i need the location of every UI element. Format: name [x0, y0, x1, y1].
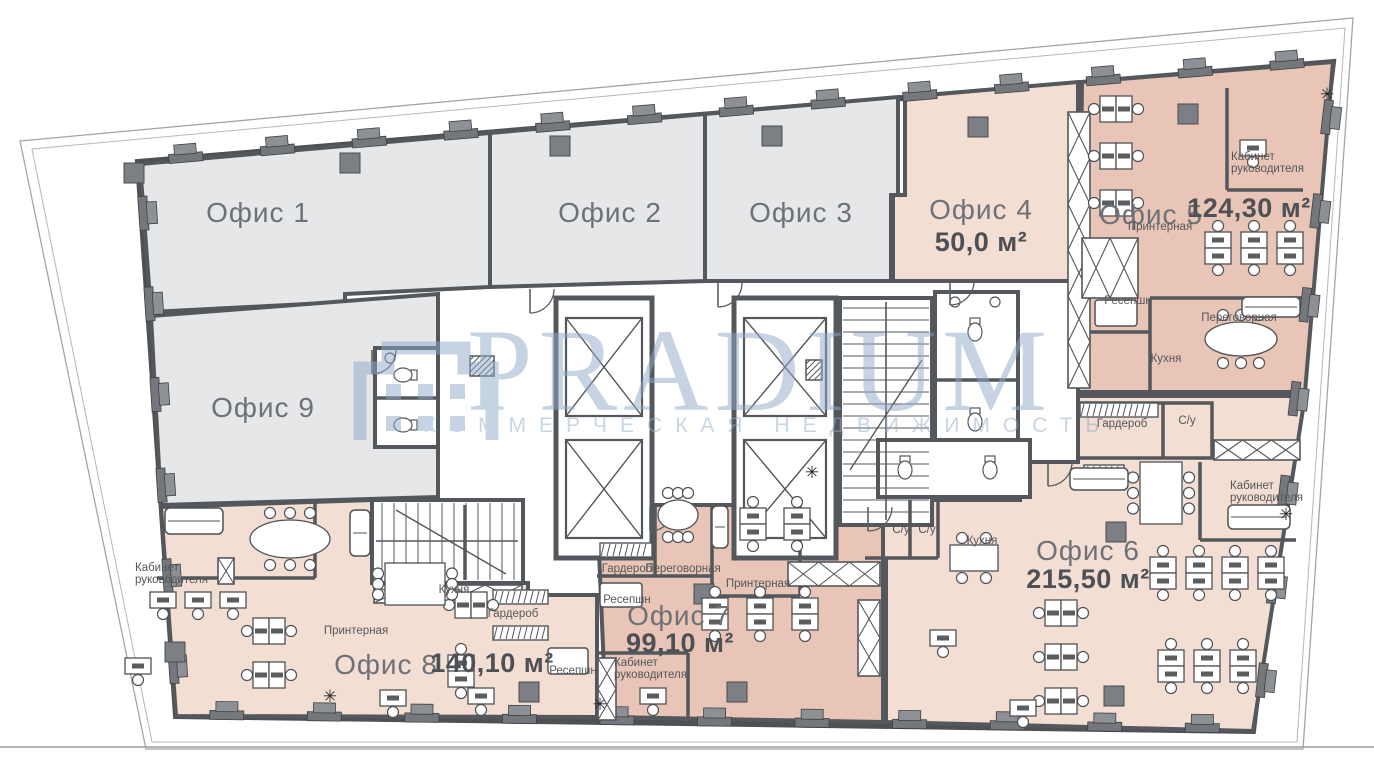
room-label-kitchen-o8: Кухня: [439, 584, 470, 596]
office-5-area: 124,30 м²: [1187, 193, 1311, 223]
cabinet-x-strip: [1082, 238, 1138, 298]
room-label-reception-o5: Ресепшн: [1104, 295, 1152, 307]
floor-plan-canvas: ✳✳✳✳✳ Офис 1 Офис 2 Офис 3 Офис 4 50,0 м…: [0, 0, 1374, 762]
window-icon: [1177, 57, 1212, 78]
svg-text:Кабинет: Кабинет: [614, 657, 658, 669]
window-icon: [1255, 663, 1277, 699]
cabinet-x-strip: [788, 562, 880, 586]
plants: ✳: [1279, 505, 1293, 524]
room-label-wardrobe-o8: Гардероб: [488, 608, 539, 620]
sofa-icon: [712, 506, 728, 548]
column: [727, 682, 747, 702]
window-icon: [259, 135, 294, 156]
watermark: PRADIUM КОММЕРЧЕСКАЯ НЕДВИЖИМОСТЬ: [360, 305, 1112, 440]
cabinet-x-strip: [858, 600, 880, 676]
column: [519, 682, 539, 702]
floor-plan-svg: ✳✳✳✳✳ Офис 1 Офис 2 Офис 3 Офис 4 50,0 м…: [0, 0, 1374, 762]
column: [340, 153, 360, 173]
office-7-area: 99,10 м²: [626, 628, 734, 658]
column: [1178, 104, 1198, 124]
room-label-wc-o6b: С/у: [892, 524, 910, 536]
plant-icon: ✳: [593, 695, 607, 714]
plant-icon: ✳: [805, 463, 819, 482]
column: [968, 117, 988, 137]
window-icon: [902, 81, 937, 102]
toilet-icon: [394, 368, 417, 382]
svg-text:руководителя: руководителя: [135, 574, 208, 586]
svg-text:Кабинет: Кабинет: [135, 562, 179, 574]
desk-single: [125, 658, 151, 686]
plant-icon: ✳: [1320, 85, 1334, 104]
column: [550, 136, 570, 156]
watermark-tagline: КОММЕРЧЕСКАЯ НЕДВИЖИМОСТЬ: [424, 414, 1113, 437]
window-icon: [168, 143, 203, 164]
plants: ✳: [593, 695, 607, 714]
plants: ✳: [805, 463, 819, 482]
svg-text:руководителя: руководителя: [1231, 163, 1304, 175]
plant-icon: ✳: [323, 687, 337, 706]
office-6-label: Офис 6: [1036, 535, 1140, 566]
cabinet-x-strip: [1214, 440, 1300, 460]
column: [762, 126, 782, 146]
column: [1104, 686, 1124, 706]
office-8-area: 140,10 м²: [430, 648, 554, 678]
office-4-label: Офис 4: [929, 194, 1033, 225]
room-label-wc-o6c: С/у: [918, 524, 936, 536]
svg-text:Кабинет: Кабинет: [1230, 480, 1274, 492]
room-label-wc-o6a: С/у: [1178, 415, 1196, 427]
room-label-printer-o5: Принтерная: [1128, 221, 1192, 233]
toilet-icon: [983, 456, 997, 479]
cabinet-x-strip: [218, 558, 234, 584]
window-icon: [994, 73, 1029, 94]
svg-text:руководителя: руководителя: [1230, 492, 1303, 504]
room-label-kitchen-o6: Кухня: [967, 535, 998, 547]
window-icon: [351, 127, 386, 148]
window-icon: [627, 104, 662, 125]
office-3-room[interactable]: [705, 97, 898, 281]
window-icon: [810, 88, 845, 109]
column: [165, 642, 185, 662]
plants: ✳: [323, 687, 337, 706]
office-1-label: Офис 1: [206, 197, 310, 228]
office-4-area: 50,0 м²: [935, 227, 1028, 257]
wardrobe-rack: [600, 543, 652, 557]
plants: ✳: [1320, 85, 1334, 104]
room-label-reception-o8: Ресепшн: [549, 665, 597, 677]
office-6-area: 215,50 м²: [1026, 564, 1150, 594]
office-9-label: Офис 9: [211, 392, 315, 423]
column: [124, 163, 144, 183]
wardrobe-rack: [493, 590, 548, 604]
window-icon: [1085, 65, 1120, 86]
office-2-label: Офис 2: [558, 197, 662, 228]
room-label-meeting-o5: Переговорная: [1201, 312, 1277, 324]
window-icon: [443, 119, 478, 140]
svg-text:Кабинет: Кабинет: [1231, 151, 1275, 163]
office-8-label: Офис 8: [334, 649, 438, 680]
window-icon: [535, 112, 570, 133]
window-icon: [718, 96, 753, 117]
plant-icon: ✳: [1279, 505, 1293, 524]
room-label-kitchen-o5: Кухня: [1151, 353, 1182, 365]
room-label-printer-o7: Принтерная: [726, 578, 790, 590]
toilet-icon: [898, 456, 912, 479]
room-label-meeting-o7: Переговорная: [645, 563, 721, 575]
window-icon: [1321, 100, 1343, 136]
window-icon: [1269, 50, 1304, 71]
meeting-table: [658, 488, 698, 543]
sofa-icon: [350, 510, 370, 556]
room-label-reception-o7: Ресепшн: [603, 594, 651, 606]
sofa-icon: [1070, 468, 1128, 490]
office-3-label: Офис 3: [749, 197, 853, 228]
room-label-printer-o8: Принтерная: [324, 625, 388, 637]
wardrobe-rack: [493, 626, 548, 640]
svg-text:руководителя: руководителя: [614, 669, 687, 681]
sofa-icon: [165, 508, 223, 534]
